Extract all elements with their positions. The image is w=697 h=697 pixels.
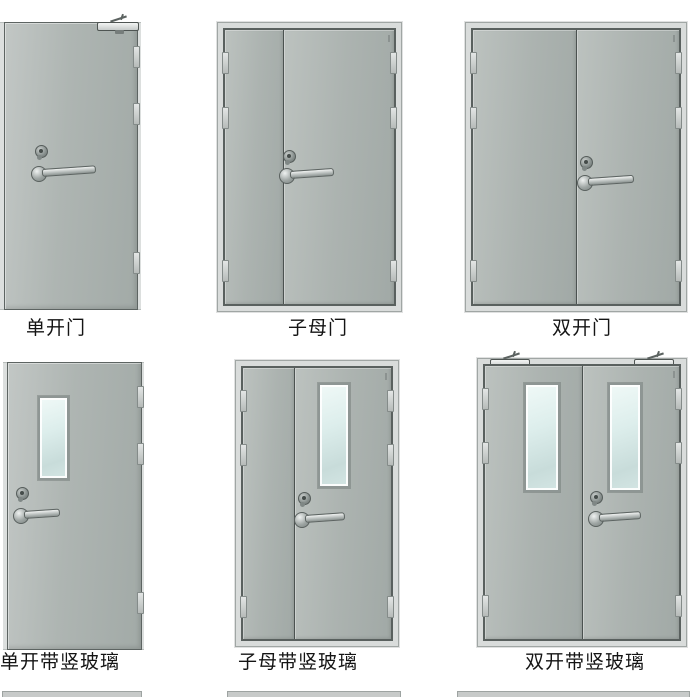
frame-mark — [673, 35, 675, 42]
hinge — [222, 52, 229, 74]
hinge — [133, 46, 140, 68]
door-leaf-left — [473, 30, 576, 304]
glass-panel — [608, 383, 642, 492]
door-caption: 双开门 — [522, 318, 642, 340]
hinge — [390, 52, 397, 74]
hinge — [222, 260, 229, 282]
hinge — [470, 260, 477, 282]
lock-cylinder — [580, 156, 593, 169]
cropped-next-row-door — [2, 691, 142, 697]
glass-panel — [524, 383, 560, 492]
hinge — [222, 107, 229, 129]
hinge — [675, 260, 682, 282]
hinge — [137, 592, 144, 614]
door-leaf-narrow — [243, 368, 294, 639]
hinge — [387, 390, 394, 412]
door-closer — [97, 14, 139, 31]
hinge — [240, 444, 247, 466]
hinge — [390, 107, 397, 129]
door-caption: 单开带竖玻璃 — [0, 652, 116, 674]
door-single-leaf — [4, 22, 138, 310]
frame-mark — [673, 371, 675, 378]
door-double-leaf — [465, 22, 687, 312]
hinge — [482, 388, 489, 410]
hinge — [470, 52, 477, 74]
hinge — [675, 595, 682, 617]
hinge — [387, 596, 394, 618]
door-caption: 子母带竖玻璃 — [238, 652, 358, 674]
door-mother-child — [217, 22, 402, 312]
hinge — [240, 390, 247, 412]
lock-cylinder — [16, 487, 29, 500]
hinge — [482, 442, 489, 464]
lock-cylinder — [283, 150, 296, 163]
lock-cylinder — [35, 145, 48, 158]
glass-panel — [318, 383, 350, 488]
door-leaf-narrow — [225, 30, 283, 304]
door-single-leaf-glass — [7, 362, 142, 650]
hinge — [133, 252, 140, 274]
hinge — [240, 596, 247, 618]
door-caption: 单开门 — [0, 318, 112, 340]
door-double-leaf-glass — [477, 358, 687, 647]
glass-panel — [38, 396, 69, 480]
lock-cylinder — [590, 491, 603, 504]
hinge — [387, 444, 394, 466]
door-mother-child-glass — [235, 360, 399, 647]
fire-door-catalog: 单开门 子母门 双开门 单开带竖玻璃 子母带竖玻璃 双开带竖玻璃 — [0, 0, 697, 697]
lock-cylinder — [298, 492, 311, 505]
frame-mark — [385, 373, 387, 380]
door-leaf-right — [576, 30, 679, 304]
hinge — [482, 595, 489, 617]
hinge — [675, 107, 682, 129]
hinge — [133, 103, 140, 125]
hinge — [390, 260, 397, 282]
hinge — [675, 388, 682, 410]
hinge — [675, 52, 682, 74]
door-leaf-wide — [283, 30, 394, 304]
hinge — [470, 107, 477, 129]
hinge — [137, 386, 144, 408]
frame-mark — [388, 35, 390, 42]
door-caption: 双开带竖玻璃 — [524, 652, 646, 674]
hinge — [675, 442, 682, 464]
door-caption: 子母门 — [258, 318, 378, 340]
cropped-next-row-door — [457, 691, 690, 697]
cropped-next-row-door — [227, 691, 401, 697]
hinge — [137, 443, 144, 465]
